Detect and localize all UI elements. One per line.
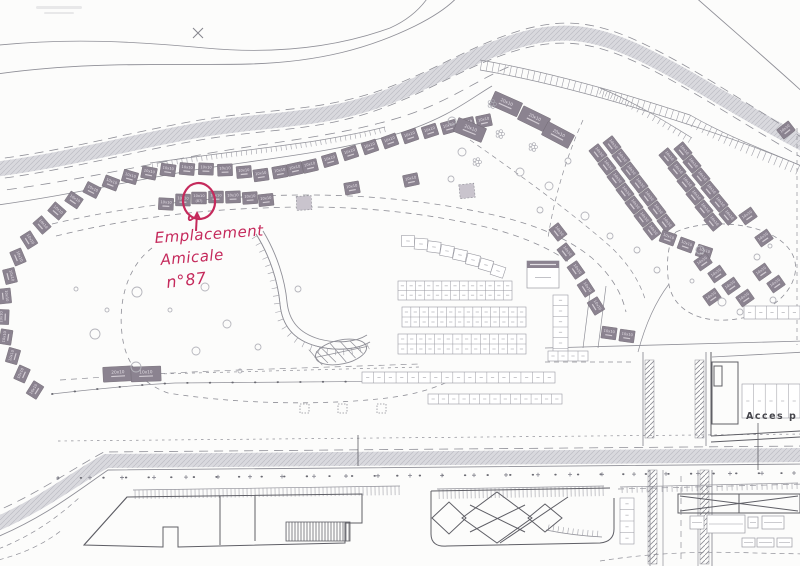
road-line	[0, 464, 800, 540]
building-outline	[711, 437, 800, 442]
survey-cross-icon	[504, 473, 508, 477]
utility-square	[300, 404, 309, 413]
parking-tick	[578, 529, 579, 535]
cell-number-mark	[504, 399, 507, 400]
cell-number-mark	[476, 322, 479, 323]
parking-tick	[573, 81, 576, 91]
tree-icon	[545, 182, 553, 190]
parking-tick	[718, 132, 722, 141]
cell-number-mark	[410, 295, 413, 296]
cell-number-mark	[436, 285, 439, 286]
parking-tick	[276, 146, 277, 151]
survey-cross-icon	[312, 474, 316, 478]
cell-number-mark	[514, 399, 517, 400]
cell-number-mark	[625, 538, 628, 539]
scan-smudge	[36, 6, 82, 9]
survey-cross-icon	[376, 474, 380, 478]
survey-cross-icon	[792, 471, 796, 475]
parking-tick	[752, 147, 756, 156]
roadway-band-texture	[0, 455, 800, 527]
parking-tick	[568, 528, 569, 534]
light-plot-rect	[459, 183, 475, 198]
cell-number-mark	[467, 312, 470, 313]
stall-plot-large: 10x10	[131, 366, 162, 382]
cell-number-mark	[581, 356, 584, 357]
bush-icon	[479, 161, 482, 164]
cell-number-mark	[758, 401, 761, 402]
cell-number-mark	[502, 339, 505, 340]
cell-number-mark	[480, 295, 483, 296]
cell-number-mark	[548, 377, 551, 378]
parking-tick	[231, 152, 232, 157]
parking-tick	[678, 131, 681, 136]
parking-tick	[202, 156, 203, 161]
cell-number-mark	[483, 349, 486, 350]
arc-cell	[465, 253, 480, 267]
stall-plot-label: 10x10	[244, 194, 256, 199]
bush-icon	[529, 144, 532, 147]
stall-plot: 10x10	[344, 181, 361, 195]
parking-tick	[360, 133, 361, 138]
cell-number-mark	[506, 295, 509, 296]
tree-icon	[192, 347, 200, 355]
island-hatch	[309, 348, 323, 368]
tree-icon	[458, 148, 466, 156]
cell-number-mark	[438, 349, 441, 350]
cell-number-mark	[449, 312, 452, 313]
stall-plot: 10x10	[198, 163, 213, 176]
cell-number-mark	[410, 339, 413, 340]
cell-number-mark	[465, 339, 468, 340]
road-line	[0, 0, 460, 75]
cell-number-mark	[759, 312, 762, 313]
cell-number-mark	[506, 285, 509, 286]
parking-tick	[261, 148, 262, 153]
road-line	[256, 234, 370, 349]
cell-number-mark	[476, 312, 479, 313]
road-line	[52, 195, 626, 312]
cell-number-mark	[746, 401, 749, 402]
parking-tick	[757, 149, 761, 158]
cell-number-mark	[491, 377, 494, 378]
stall-plot: 10x10	[341, 145, 359, 161]
tree-icon	[295, 286, 301, 292]
tree-icon	[255, 344, 261, 350]
arc-cell	[440, 244, 455, 257]
survey-cross-icon	[152, 475, 156, 479]
building-outline	[84, 497, 127, 545]
hatched-curb	[648, 470, 657, 564]
cell-number-mark	[493, 312, 496, 313]
annotation-text: Amicale	[159, 246, 225, 270]
stall-plot: 10x10	[0, 288, 12, 304]
utility-square	[377, 404, 386, 413]
cell-number-mark	[474, 349, 477, 350]
road-line	[712, 352, 800, 357]
cell-number-mark	[366, 377, 369, 378]
parking-tick	[691, 118, 696, 127]
parking-tick	[567, 79, 569, 89]
parking-tick	[287, 332, 291, 336]
hatched-curb	[695, 360, 704, 438]
stall-plot-label: 20x10	[111, 369, 125, 375]
stall-plot: 10x10	[158, 198, 174, 211]
tree-icon	[90, 329, 100, 339]
parking-tick	[316, 141, 317, 146]
stall-plot-light	[296, 196, 312, 211]
parking-tick	[226, 153, 227, 158]
parking-tick	[273, 295, 279, 296]
parking-tick	[533, 71, 535, 81]
parking-tick	[302, 342, 305, 347]
stall-plot: 10x10	[321, 152, 339, 168]
hatched-island	[308, 335, 370, 371]
parking-tick	[291, 144, 292, 149]
parking-tick	[602, 89, 605, 99]
bush-icon	[496, 131, 499, 134]
cell-number-mark	[401, 349, 404, 350]
parking-tick	[270, 280, 276, 282]
annotation-text: Emplacement	[154, 221, 265, 247]
stall-plot: 10x10	[0, 309, 9, 324]
bush-icon	[476, 163, 479, 166]
cell-number-mark	[769, 401, 772, 402]
parking-tick	[665, 108, 668, 118]
cell-number-mark	[431, 322, 434, 323]
cell-number-mark	[625, 526, 628, 527]
cell-number-mark	[520, 339, 523, 340]
cell-number-mark	[456, 349, 459, 350]
tree-icon	[537, 207, 543, 213]
stall-plot: 10x10	[361, 139, 379, 155]
stall-plot: 10x10	[258, 193, 274, 207]
parking-tick	[278, 319, 284, 321]
survey-cross-icon	[600, 472, 604, 476]
parking-tick	[310, 345, 312, 351]
parking-tick	[579, 82, 582, 92]
cell-number-mark	[414, 322, 417, 323]
cell-number-mark	[559, 343, 562, 344]
cell-number-mark	[497, 285, 500, 286]
box-text-mark	[759, 542, 772, 543]
stall-plot: 10x10	[659, 230, 677, 246]
parking-tick	[686, 115, 691, 124]
cell-number-mark	[511, 312, 514, 313]
stall-plot: 10x10	[102, 175, 120, 192]
cell-number-mark	[414, 312, 417, 313]
cell-number-mark	[474, 339, 477, 340]
tree-icon	[737, 309, 743, 315]
stall-plot: 10x10	[752, 263, 771, 281]
tree-icon	[516, 168, 524, 176]
tree-icon	[581, 212, 589, 220]
crossing-structure	[528, 504, 562, 532]
survey-cross-icon	[632, 472, 636, 476]
cell-number-mark	[423, 312, 426, 313]
parking-tick	[563, 527, 564, 533]
parking-tick	[370, 131, 371, 136]
parking-tick	[616, 96, 619, 101]
cell-number-mark	[428, 349, 431, 350]
cell-number-mark	[492, 339, 495, 340]
stall-plot: 10x10	[619, 329, 636, 343]
cell-number-mark	[545, 399, 548, 400]
comb-baseline	[600, 88, 692, 138]
cell-number-mark	[511, 339, 514, 340]
survey-cross-icon	[280, 474, 284, 478]
stall-plot-label: 10x10	[0, 311, 4, 323]
parking-tick	[306, 142, 307, 147]
crossing-structure	[462, 492, 532, 543]
road-line	[0, 530, 62, 562]
stall-plot: 10x10	[179, 162, 195, 175]
cell-number-mark	[405, 312, 408, 313]
parking-tick	[702, 124, 707, 133]
stall-plot: 10x10	[253, 168, 270, 182]
parking-tick	[768, 154, 772, 163]
cell-number-mark	[446, 377, 449, 378]
parking-tick	[610, 94, 612, 99]
cell-number-mark	[748, 312, 751, 313]
survey-cross-icon	[760, 471, 764, 475]
road-line	[58, 434, 800, 441]
x-mark	[193, 28, 203, 38]
cell-number-mark	[492, 349, 495, 350]
parking-tick	[550, 75, 552, 85]
parking-tick	[631, 97, 634, 107]
stall-plot: 10x10	[557, 242, 576, 261]
parking-tick	[621, 99, 624, 104]
tree-icon	[718, 298, 726, 306]
cell-number-mark	[406, 240, 410, 241]
parking-tick	[562, 78, 564, 88]
tree-icon	[770, 297, 776, 303]
bush-icon	[473, 162, 476, 165]
survey-cross-icon	[248, 475, 252, 479]
survey-cross-icon	[536, 473, 540, 477]
cell-number-mark	[462, 295, 465, 296]
stall-plot: 10x10	[401, 128, 419, 144]
site-plan-scan: 10x1010x1010x1010x1010x1010x1010x1010x10…	[0, 0, 800, 566]
cell-number-mark	[535, 399, 538, 400]
stall-number-mark	[222, 171, 229, 172]
parking-tick	[515, 67, 517, 77]
stall-plot: 10x10	[601, 326, 618, 340]
parking-tick	[192, 157, 193, 162]
cell-number-mark	[488, 295, 491, 296]
road-line	[263, 231, 367, 342]
stall-plot: 10x10	[236, 165, 252, 178]
parking-tick	[637, 107, 640, 112]
cell-number-mark	[561, 356, 564, 357]
cell-number-mark	[423, 322, 426, 323]
comb-baseline	[256, 234, 370, 349]
parking-tick	[683, 134, 686, 139]
stall-plot-light	[459, 183, 475, 198]
parking-tick	[659, 106, 662, 116]
stall-plot: 10x10	[272, 165, 289, 179]
stall-plot: 10x10	[33, 215, 52, 234]
parking-tick	[682, 113, 685, 123]
kiosk-text-mark	[535, 277, 551, 278]
stall-plot: 10x10	[121, 169, 139, 185]
tree-icon	[690, 279, 694, 283]
tree-icon	[238, 369, 242, 373]
cell-number-mark	[502, 377, 505, 378]
bush-icon	[499, 135, 502, 138]
cell-number-mark	[497, 295, 500, 296]
parking-tick	[556, 76, 558, 86]
cell-number-mark	[458, 312, 461, 313]
parking-tick	[619, 94, 622, 104]
parking-tick	[365, 132, 366, 137]
parking-tick	[553, 525, 554, 531]
parking-tick	[330, 138, 331, 143]
parking-tick	[504, 65, 506, 75]
stall-plot: 10x10	[83, 181, 102, 199]
building-outline	[431, 491, 614, 546]
cell-number-mark	[453, 285, 456, 286]
parking-tick	[301, 143, 302, 148]
road-line	[638, 284, 669, 352]
kiosk-header-text-mark	[530, 264, 556, 265]
cell-number-mark	[551, 356, 554, 357]
survey-cross-icon	[568, 473, 572, 477]
tree-icon	[634, 247, 640, 253]
stall-plot-large: 20x10	[489, 91, 523, 117]
survey-cross-icon	[56, 476, 60, 480]
cell-number-mark	[462, 285, 465, 286]
hatched-curb	[645, 360, 654, 438]
cell-number-mark	[555, 399, 558, 400]
cell-number-mark	[432, 399, 435, 400]
cell-number-mark	[401, 339, 404, 340]
cell-number-mark	[471, 295, 474, 296]
stall-plot: 10x10	[721, 277, 740, 295]
tree-icon	[768, 244, 772, 248]
parking-tick	[281, 146, 282, 151]
stall-plot-label: 10x10	[210, 193, 222, 197]
parking-tick	[197, 157, 198, 162]
cell-number-mark	[483, 399, 486, 400]
parking-tick	[521, 68, 523, 78]
cell-number-mark	[440, 322, 443, 323]
parking-tick	[172, 160, 173, 165]
parking-tick	[658, 119, 661, 124]
survey-cross-icon	[344, 474, 348, 478]
parking-tick	[236, 152, 237, 157]
post-dot-line	[58, 473, 795, 478]
cell-number-mark	[559, 311, 562, 312]
cell-number-mark	[511, 349, 514, 350]
tree-icon	[74, 287, 78, 291]
parking-tick	[282, 326, 287, 329]
box-text-mark	[779, 542, 790, 543]
cell-number-mark	[377, 377, 380, 378]
cell-number-mark	[434, 377, 437, 378]
building-outline	[711, 431, 800, 436]
parking-tick	[724, 135, 728, 144]
parking-tick	[294, 338, 298, 343]
parking-tick	[539, 72, 541, 82]
parking-tick	[345, 136, 346, 141]
parking-tick	[286, 145, 287, 150]
parking-tick	[673, 128, 676, 133]
cell-number-mark	[524, 399, 527, 400]
cell-number-mark	[536, 377, 539, 378]
stall-plot: 10x10	[225, 191, 240, 204]
box-text-mark	[764, 522, 782, 523]
stall-number-mark	[230, 198, 237, 199]
cell-number-mark	[571, 356, 574, 357]
road-line	[693, 0, 800, 95]
parking-tick	[492, 62, 494, 72]
hatched-dock	[286, 522, 350, 541]
parking-tick	[221, 153, 222, 158]
cell-number-mark	[493, 322, 496, 323]
parking-tick	[652, 116, 655, 121]
parking-tick	[740, 142, 744, 151]
survey-cross-icon	[184, 475, 188, 479]
cell-number-mark	[410, 285, 413, 286]
parking-tick	[600, 89, 602, 95]
parking-tick	[585, 84, 588, 94]
cell-number-mark	[445, 295, 448, 296]
survey-cross-icon	[664, 472, 668, 476]
comb-baseline	[546, 530, 602, 537]
arc-cell	[427, 241, 441, 254]
cell-number-mark	[782, 312, 785, 313]
bush-icon	[535, 146, 538, 149]
bush-icon	[499, 130, 502, 133]
road-line	[0, 86, 492, 206]
stall-plot-label: 10x10	[139, 369, 153, 374]
cell-number-mark	[485, 312, 488, 313]
cell-number-mark	[625, 503, 628, 504]
cell-number-mark	[456, 339, 459, 340]
cell-number-mark	[559, 300, 562, 301]
stall-plot: 10x10	[217, 164, 232, 177]
parking-tick	[588, 530, 589, 536]
cell-number-mark	[480, 285, 483, 286]
stall-plot: 10x10	[26, 380, 44, 399]
stall-plot: 10x10	[766, 275, 785, 293]
stall-plot: 10x10	[577, 278, 595, 297]
cell-number-mark	[480, 377, 483, 378]
survey-cross-icon	[696, 472, 700, 476]
parking-tick	[668, 125, 671, 130]
parking-tick	[785, 161, 789, 170]
cell-number-mark	[436, 295, 439, 296]
cell-number-mark	[781, 401, 784, 402]
bush-icon	[532, 143, 535, 146]
tree-icon	[565, 158, 571, 164]
cell-number-mark	[473, 399, 476, 400]
parking-tick	[746, 144, 750, 153]
cell-number-mark	[442, 399, 445, 400]
parking-tick	[583, 530, 584, 536]
cell-number-mark	[419, 349, 422, 350]
comb-baseline	[133, 486, 400, 490]
stall-plot-label: 10x10	[219, 166, 231, 170]
tree-icon	[132, 287, 142, 297]
parking-tick	[350, 135, 351, 140]
parking-tick	[325, 139, 326, 144]
cell-number-mark	[458, 322, 461, 323]
cell-number-mark	[418, 295, 421, 296]
cell-number-mark	[493, 399, 496, 400]
bush-icon	[473, 159, 476, 162]
